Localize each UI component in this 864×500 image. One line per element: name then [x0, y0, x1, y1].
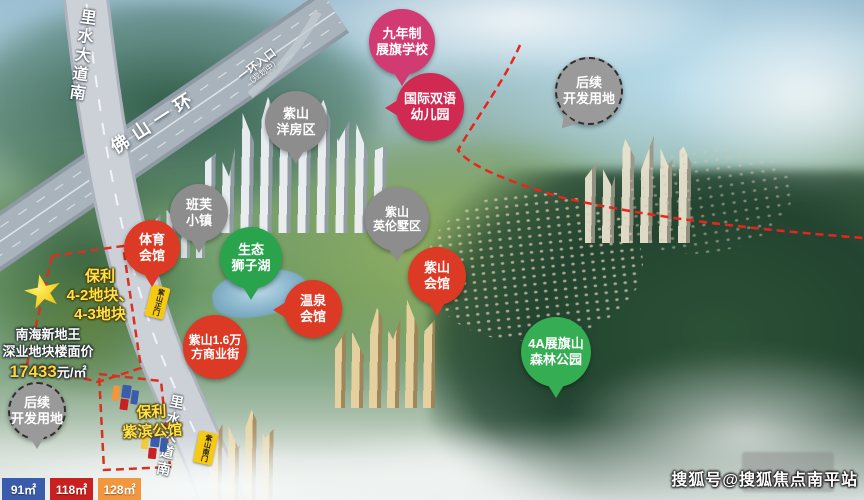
zibin-mansion-note: 保利 紫滨公馆: [111, 402, 193, 444]
unit-size-legend: 91㎡118㎡128㎡: [2, 478, 141, 500]
badge-hotspring-hall: 温泉会馆: [284, 280, 342, 338]
badge-kindergarten: 国际双语幼儿园: [396, 73, 464, 141]
badge-pointer: [29, 436, 45, 449]
badge-pointer: [144, 274, 160, 287]
legend-swatch-91㎡: 91㎡: [2, 478, 45, 500]
badge-banff-town: 班芙小镇: [170, 184, 228, 242]
badge-pointer: [243, 287, 259, 300]
watermark-text: 搜狐号@搜狐焦点南平站: [671, 466, 858, 490]
badge-sports-hall: 体育会馆: [124, 220, 180, 276]
legend-swatch-118㎡: 118㎡: [50, 478, 93, 500]
badge-pointer: [273, 302, 286, 318]
aerial-masterplan-map: 里水大道南 里水大道南 佛山一环 一环入口 （规划中） 保利 4-2地块、 4-…: [0, 0, 864, 500]
legend-swatch-128㎡: 128㎡: [98, 478, 141, 500]
badge-future-dev-southwest: 后续开发用地: [8, 382, 66, 440]
badge-pointer: [548, 385, 564, 398]
badge-school-9year: 九年制展旗学校: [369, 9, 435, 75]
badge-eco-lion-lake: 生态狮子湖: [220, 227, 282, 289]
poly-plots-note: 保利 4-2地块、 4-3地块: [55, 268, 145, 324]
badge-pointer: [429, 303, 445, 316]
badge-pointer: [288, 151, 304, 164]
badge-zishan-hall: 紫山会馆: [408, 247, 466, 305]
land-king-note: 南海新地王 深业地块楼面价 17433元/㎡: [0, 327, 96, 383]
badge-future-dev-northeast: 后续开发用地: [555, 57, 623, 125]
badge-forest-park-4a: 4A展旗山森林公园: [521, 317, 591, 387]
badge-pointer: [385, 100, 398, 116]
badge-pointer: [389, 249, 405, 262]
badge-english-villa-district: 紫山英伦墅区: [365, 187, 429, 251]
east-boundary-dashed-line: [458, 45, 864, 238]
floor-price-value: 17433: [10, 362, 57, 381]
badge-commercial-street: 紫山1.6万方商业街: [183, 315, 247, 379]
badge-yangfang-district: 紫山洋房区: [265, 91, 327, 153]
badge-pointer: [191, 240, 207, 253]
